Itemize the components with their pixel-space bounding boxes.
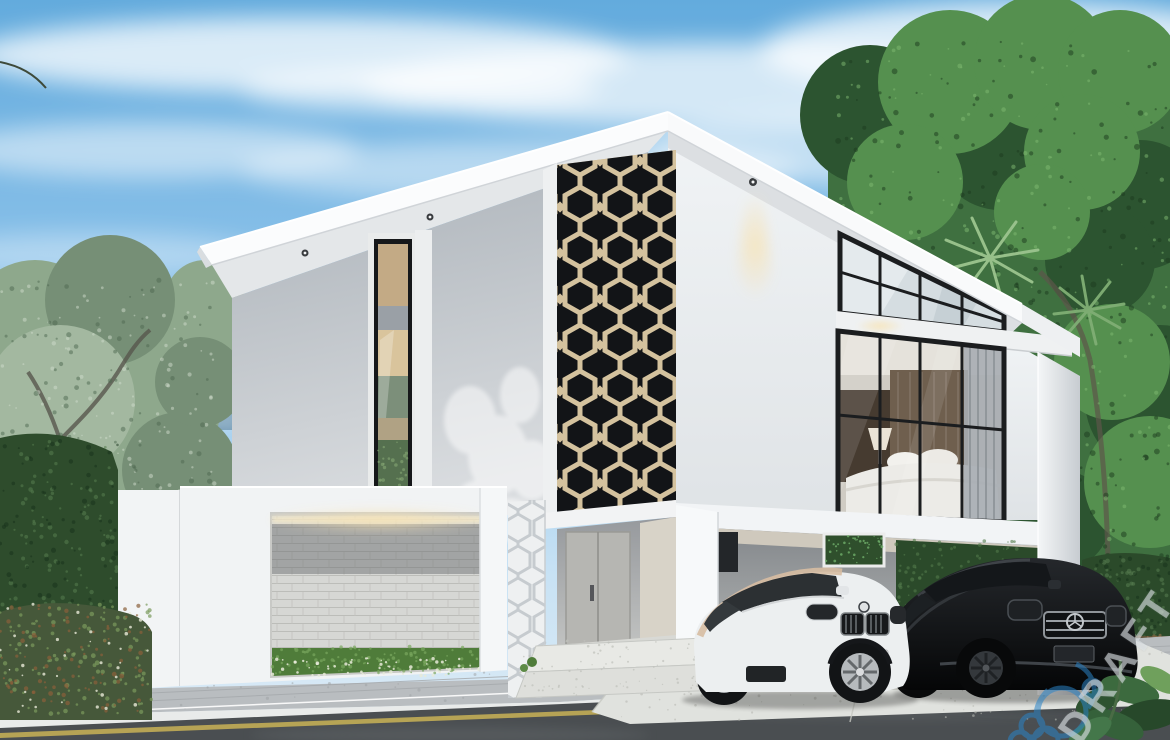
- window-pane-top: [378, 244, 408, 306]
- window-strip: [368, 230, 432, 502]
- right-wing-wall-end: [1004, 338, 1040, 520]
- render-canvas: [0, 0, 1170, 740]
- bmw-wheel-front: [829, 641, 891, 703]
- mercedes-grille: [1044, 612, 1106, 638]
- fence-right-post: [480, 488, 507, 672]
- carport-wall-art: [824, 534, 884, 566]
- tower-screen: [540, 140, 690, 530]
- entrance-door: [566, 532, 630, 645]
- carport-niche: [716, 532, 738, 572]
- cove-light-glow: [265, 507, 495, 533]
- tower-jamb: [543, 163, 557, 522]
- hedge-front-left: [0, 603, 153, 720]
- tower-screen-pattern: [540, 140, 690, 530]
- door-handle: [590, 585, 594, 601]
- bmw-headlight: [806, 604, 838, 620]
- mercedes-headlight: [1008, 600, 1042, 620]
- entry-steps: [516, 638, 722, 698]
- mercedes-wheel-front: [956, 638, 1016, 698]
- architectural-render-scene: DRAFT: [0, 0, 1170, 740]
- stone-accent-wall: [265, 507, 495, 678]
- bmw-roundel: [859, 602, 869, 612]
